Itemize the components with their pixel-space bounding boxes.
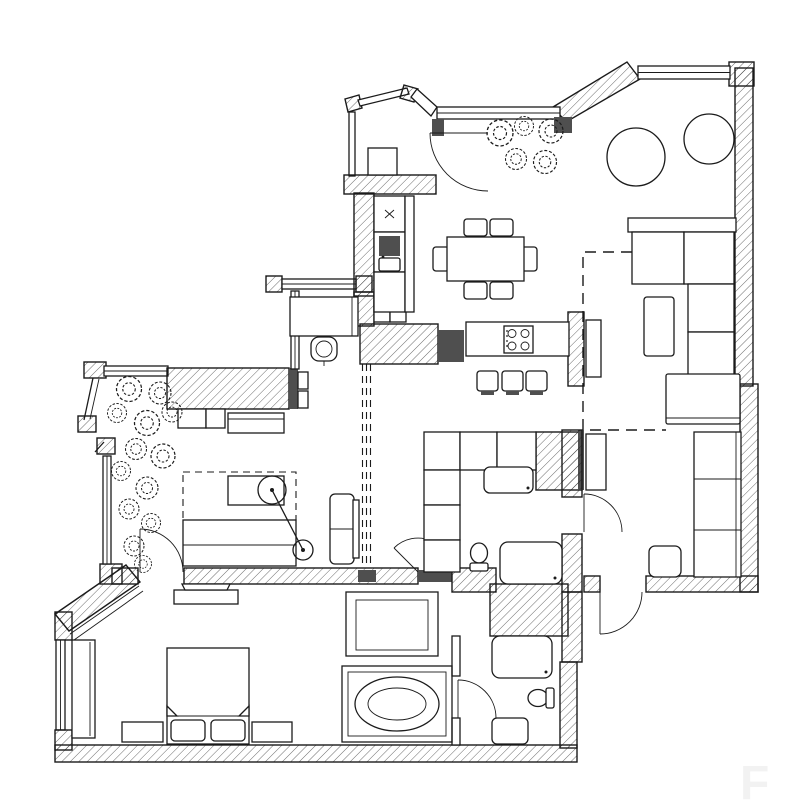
pouf — [649, 546, 681, 577]
wall-corner-block — [78, 416, 96, 432]
tv-icon — [182, 584, 230, 590]
dresser — [228, 413, 284, 433]
divider-wall — [452, 636, 460, 676]
plant-icon — [151, 444, 175, 468]
floor-plan-canvas: F — [0, 0, 794, 800]
bedroom-wall — [184, 568, 418, 584]
washing-machine — [500, 542, 562, 584]
floor-plan-drawing: F — [0, 0, 794, 800]
wall-corner-block — [266, 276, 282, 292]
threshold-dark — [358, 570, 376, 582]
wall-post — [298, 372, 308, 389]
pillow — [211, 720, 245, 741]
round-table — [684, 114, 734, 164]
divider-wall — [452, 718, 460, 745]
bedside-bench — [252, 722, 292, 742]
exterior-walls — [55, 62, 758, 762]
dining-chair — [490, 219, 513, 236]
wardrobe-wall-block — [167, 368, 289, 409]
plant-icon — [506, 149, 527, 170]
sofa-bed — [183, 520, 296, 566]
toilet-icon — [528, 688, 554, 708]
terrace-door-swing — [430, 133, 488, 191]
washbasin — [492, 636, 552, 678]
sliding-partition-dashed — [363, 364, 371, 568]
left-wall-block — [55, 730, 72, 750]
stool — [178, 409, 206, 428]
plant-icon — [124, 536, 144, 556]
right-wall-upper — [735, 68, 753, 386]
right-wall-lower — [740, 384, 758, 592]
wc1-wall — [562, 534, 582, 592]
console-table — [586, 434, 606, 490]
washbasin — [484, 467, 533, 493]
dining-chair — [464, 282, 487, 299]
kitchen-dark-block — [438, 330, 464, 362]
window-jamb-dark — [554, 117, 572, 133]
base-cabinet — [374, 272, 405, 312]
desk — [290, 297, 358, 336]
bay-door-panel — [411, 89, 437, 116]
kitchen-sink — [379, 258, 400, 271]
wall-post — [298, 391, 308, 408]
bathroom — [342, 592, 452, 742]
stool — [206, 409, 225, 428]
hob-icon — [504, 326, 533, 353]
plant-icon — [112, 462, 131, 481]
wc2-right-wall — [560, 662, 577, 748]
plant-icon — [135, 556, 152, 573]
wall-stub — [584, 576, 600, 592]
terrace-wall — [344, 175, 436, 194]
plant-icon — [119, 499, 139, 519]
plant-icon — [534, 151, 557, 174]
plant-icon — [487, 120, 513, 146]
bath-wall-block — [490, 584, 568, 636]
shower-enclosure — [346, 592, 438, 656]
coffee-table — [644, 297, 674, 356]
right-room-bottom-wall — [646, 576, 758, 592]
bedroom-door-swing — [140, 529, 183, 572]
plant-icon — [142, 514, 161, 533]
right-room-left-wall — [562, 430, 582, 497]
master-bedroom — [72, 584, 292, 744]
living-room — [583, 114, 740, 430]
kitchen-corner-unit — [360, 324, 438, 364]
terrace-cabinet — [368, 148, 397, 175]
dining-chair — [490, 282, 513, 299]
bedside-bench — [122, 722, 163, 742]
bay-window-glazing — [349, 112, 355, 176]
plant-icon — [135, 411, 160, 436]
plant-icon — [117, 377, 142, 402]
faucet-icon — [382, 256, 385, 259]
wardrobe — [694, 432, 741, 577]
swivel-table — [228, 476, 284, 505]
counter-edge — [405, 196, 414, 312]
wardrobe — [72, 640, 95, 738]
bar-stools — [477, 371, 547, 395]
wall-cap-dark — [289, 368, 298, 409]
bathtub — [342, 666, 452, 742]
diagonal-wall — [553, 62, 640, 122]
watermark: F — [740, 757, 769, 800]
toilet-icon — [470, 543, 488, 571]
shower-tray — [492, 718, 528, 744]
armchair-arm — [353, 500, 359, 558]
wc2-door-swing — [458, 680, 496, 718]
tv-console — [174, 590, 238, 604]
wc-2 — [492, 636, 554, 744]
plant-icon — [108, 404, 127, 423]
chaise-lounge — [666, 374, 740, 424]
wc1-door-swing — [584, 494, 622, 532]
dining-set — [433, 219, 537, 299]
right-room — [586, 432, 741, 577]
entrance-door-swing — [600, 592, 642, 634]
dining-chair — [464, 219, 487, 236]
dining-table — [447, 237, 524, 281]
bottom-wall — [55, 745, 577, 762]
console-table — [586, 320, 601, 377]
plant-icon — [136, 477, 158, 499]
pillow — [171, 720, 205, 741]
island-tall-cabinet — [568, 312, 584, 386]
drainer — [379, 236, 400, 256]
plant-icon — [126, 439, 147, 460]
bedroom-wall — [112, 568, 138, 584]
wall-corner-block — [84, 362, 106, 378]
kitchen-left-wall — [354, 193, 374, 296]
round-table — [607, 128, 665, 186]
study-nook — [290, 297, 358, 366]
